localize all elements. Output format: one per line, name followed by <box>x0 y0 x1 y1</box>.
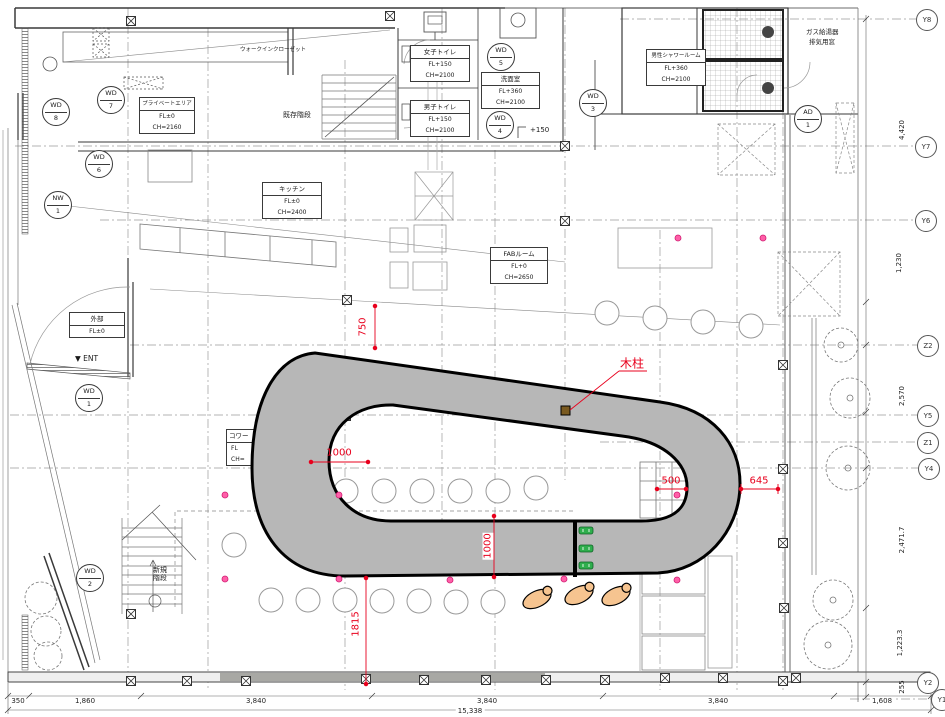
red-dim-750: 750 <box>358 316 369 337</box>
red-dim-645: 645 <box>749 476 768 487</box>
wood-post-marker <box>561 406 570 415</box>
persons <box>520 580 635 612</box>
wood-post-label: 木柱 <box>620 355 644 372</box>
red-dim-1000-left: 1000 <box>326 448 351 459</box>
red-dim-500: 500 <box>661 476 680 487</box>
green-items <box>579 527 593 569</box>
track-band <box>252 353 740 576</box>
red-dim-1000-mid: 1000 <box>483 532 494 559</box>
floor-plan-page: { "colors":{"band_gray":"#b7b7b7","dim_r… <box>0 0 945 717</box>
overlay-drawing <box>0 0 945 717</box>
red-dim-1815: 1815 <box>351 610 362 637</box>
